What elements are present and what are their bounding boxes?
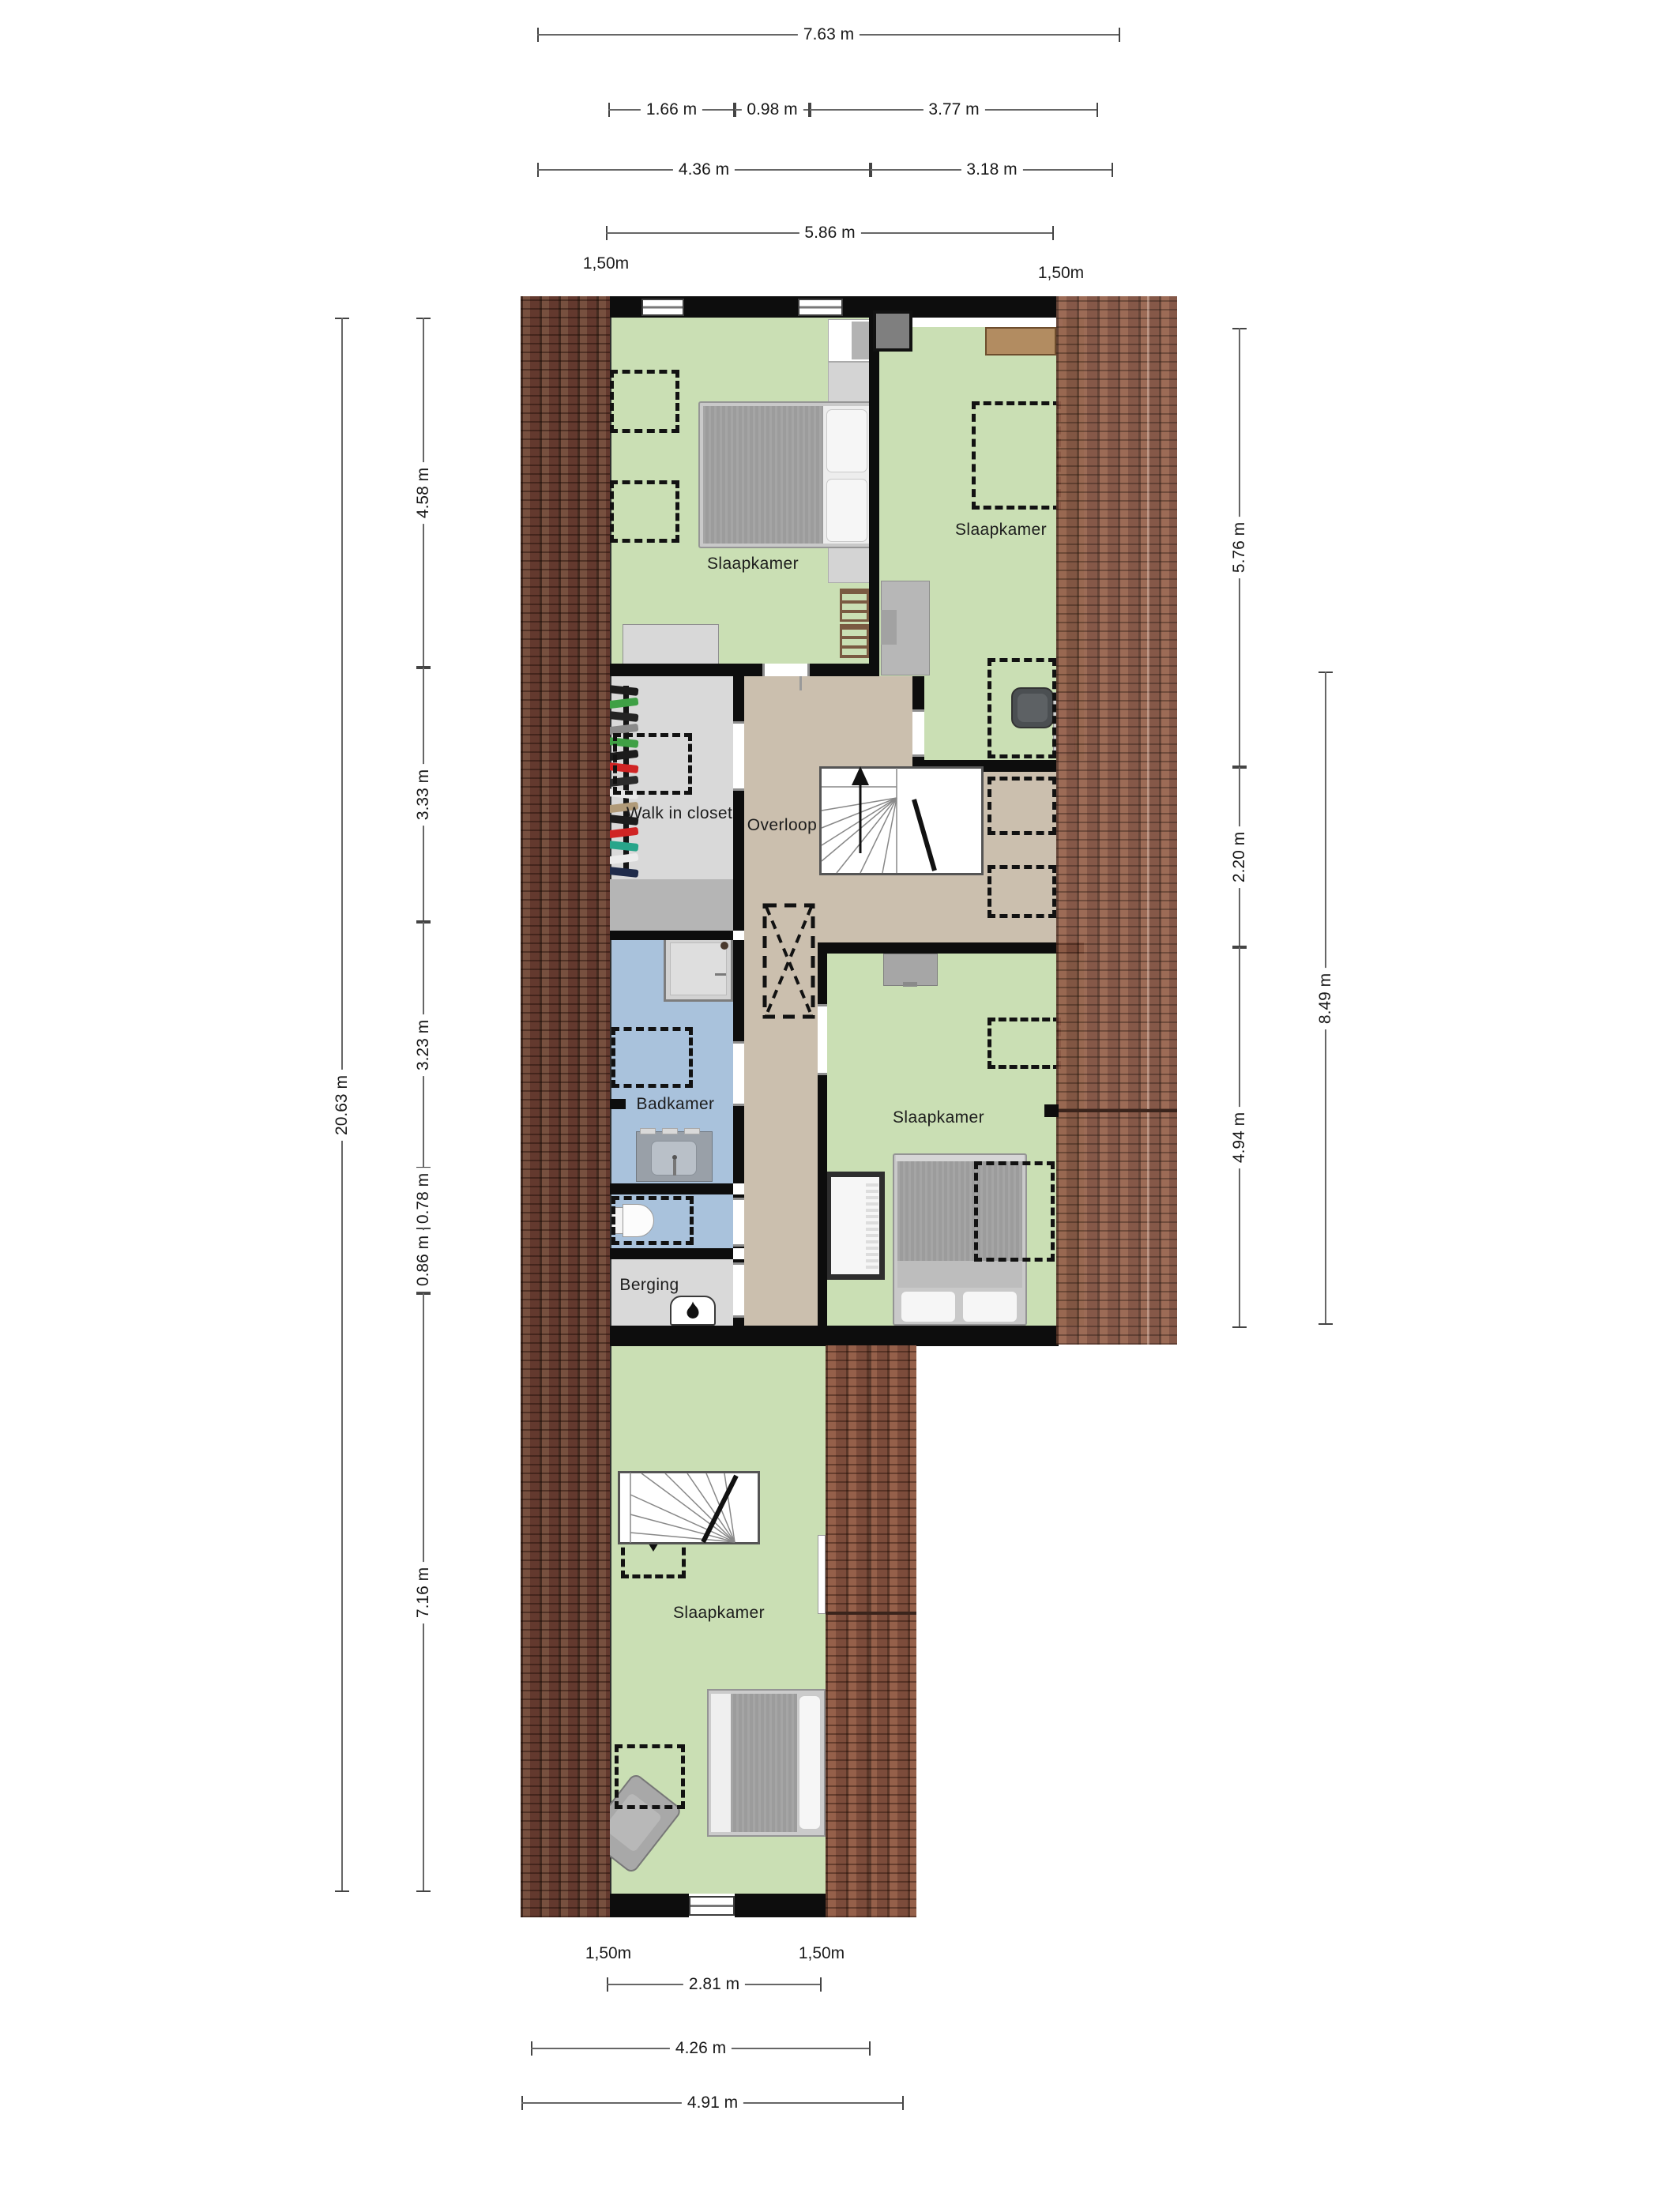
dim-left-seg: 7.16 m bbox=[413, 1293, 434, 1892]
roof-eave-line bbox=[826, 1612, 916, 1615]
wall bbox=[608, 1894, 689, 1917]
dim-top-seg: 3.77 m bbox=[810, 100, 1098, 120]
wall bbox=[610, 1183, 733, 1194]
wall bbox=[818, 942, 1084, 954]
dim-top-seg: 4.36 m bbox=[537, 160, 871, 180]
knee-wall-height-label: 1,50m bbox=[782, 1944, 861, 1963]
wall bbox=[607, 1326, 1059, 1346]
pillow bbox=[962, 1291, 1018, 1322]
ladder-chair bbox=[840, 589, 869, 622]
room-landing-upper bbox=[744, 676, 912, 772]
roof-window-marker bbox=[987, 865, 1056, 918]
window bbox=[641, 299, 684, 316]
bed-e-band bbox=[897, 1261, 1022, 1288]
clothes-item bbox=[608, 685, 639, 696]
roof-right-upper bbox=[1056, 296, 1177, 1345]
clothes-item bbox=[608, 711, 639, 722]
dim-right-seg: 5.76 m bbox=[1229, 328, 1250, 767]
stairs-up bbox=[819, 766, 984, 875]
shower-head-icon bbox=[720, 942, 728, 950]
room-label-bathroom: Badkamer bbox=[637, 1095, 715, 1114]
dim-bottom-seg: 2.81 m bbox=[607, 1974, 822, 1995]
knee-wall-shelf bbox=[912, 318, 1063, 327]
dim-top-seg: 0.98 m bbox=[735, 100, 810, 120]
roof-stub bbox=[1044, 1104, 1059, 1117]
flame-icon bbox=[685, 1301, 701, 1320]
room-label-bedroom-e: Slaapkamer bbox=[893, 1108, 984, 1127]
wall bbox=[818, 942, 827, 1326]
vanity-towel bbox=[684, 1128, 700, 1134]
chimney bbox=[873, 310, 912, 352]
roof-window-marker bbox=[987, 777, 1056, 835]
dim-left-seg: 4.58 m bbox=[413, 318, 434, 668]
bed-e-headbar bbox=[896, 1155, 1024, 1161]
wall bbox=[869, 296, 879, 676]
clothes-item bbox=[608, 853, 639, 865]
wall bbox=[810, 664, 879, 676]
ladder-chair bbox=[840, 624, 869, 658]
clothes-item bbox=[608, 827, 639, 839]
shower-inner bbox=[670, 942, 727, 995]
knee-wall-height-label: 1,50m bbox=[566, 254, 645, 273]
roof-left bbox=[521, 296, 610, 1917]
pillow bbox=[826, 409, 867, 472]
door bbox=[733, 1041, 744, 1106]
vanity-towel bbox=[640, 1128, 656, 1134]
roof-window-marker bbox=[611, 1027, 693, 1088]
closet-low-roof-zone bbox=[610, 879, 733, 931]
wall bbox=[610, 664, 762, 676]
door bbox=[733, 1198, 744, 1247]
pillow bbox=[901, 1291, 956, 1322]
desk-chair-slot bbox=[881, 610, 897, 645]
clothes-item bbox=[608, 867, 639, 878]
dim-bottom-seg: 4.26 m bbox=[531, 2038, 871, 2059]
door bbox=[818, 1004, 827, 1075]
door-leaf bbox=[799, 676, 802, 690]
window bbox=[689, 1896, 735, 1916]
knee-wall-height-label: 1,50m bbox=[1021, 264, 1100, 283]
roof-window-marker bbox=[974, 1161, 1055, 1262]
roof-window-marker bbox=[615, 1744, 685, 1809]
door bbox=[912, 709, 924, 757]
dim-bottom-total: 4.91 m bbox=[521, 2093, 904, 2113]
wall bbox=[610, 1248, 733, 1259]
dresser bbox=[623, 624, 719, 668]
wall bbox=[735, 1894, 826, 1917]
room-label-storage: Berging bbox=[619, 1276, 679, 1295]
knee-wall-height-label: 1,50m bbox=[569, 1944, 648, 1963]
wall bbox=[610, 931, 733, 940]
dim-top-seg: 1.66 m bbox=[608, 100, 735, 120]
dim-top-seg: 5.86 m bbox=[606, 223, 1054, 243]
roof-window-marker bbox=[987, 1018, 1061, 1069]
dim-top-total: 7.63 m bbox=[537, 24, 1120, 45]
shower-faucet-icon bbox=[715, 973, 726, 976]
dim-right-seg: 4.94 m bbox=[1229, 947, 1250, 1328]
bed-s-sheet bbox=[711, 1694, 732, 1832]
pillow bbox=[826, 479, 867, 542]
roof-window-marker bbox=[610, 480, 679, 543]
closet-block bbox=[883, 954, 938, 986]
vanity-towel bbox=[662, 1128, 678, 1134]
roof-window-marker bbox=[987, 658, 1056, 758]
room-label-walk-in-closet: Walk in closet bbox=[626, 804, 732, 823]
stairs-down bbox=[618, 1471, 760, 1544]
faucet-stem bbox=[673, 1160, 676, 1176]
roof-ridge-line bbox=[869, 1345, 871, 1917]
dim-left-total: 20.63 m bbox=[332, 318, 352, 1892]
dim-left-seg: 3.23 m bbox=[413, 922, 434, 1168]
window bbox=[798, 299, 843, 316]
door bbox=[733, 721, 744, 791]
pillow bbox=[799, 1695, 821, 1830]
clothes-item bbox=[608, 841, 639, 852]
door bbox=[762, 664, 810, 676]
roof-window-marker bbox=[613, 733, 692, 795]
dim-left-seg: 0.86 m bbox=[413, 1228, 434, 1293]
dim-right-total: 8.49 m bbox=[1315, 671, 1336, 1325]
dim-top-seg: 3.18 m bbox=[871, 160, 1113, 180]
knee-wall-door bbox=[818, 1535, 826, 1614]
roof-window-marker bbox=[611, 1196, 694, 1245]
double-bed-duvet bbox=[703, 406, 823, 544]
room-label-landing: Overloop bbox=[747, 816, 817, 835]
door bbox=[733, 1262, 744, 1318]
boiler-unit bbox=[670, 1296, 716, 1326]
room-label-bedroom-nw: Slaapkamer bbox=[707, 555, 799, 574]
wood-shelf bbox=[985, 327, 1056, 355]
roof-window-marker bbox=[972, 401, 1061, 510]
roof-ridge-line bbox=[1147, 296, 1149, 1345]
room-label-bedroom-ne: Slaapkamer bbox=[955, 521, 1047, 540]
dim-left-seg: 0.78 m bbox=[413, 1168, 434, 1228]
dim-right-seg: 2.20 m bbox=[1229, 767, 1250, 947]
roof-window-marker bbox=[610, 370, 679, 433]
crib-blanket bbox=[866, 1182, 878, 1269]
clothes-item bbox=[608, 698, 639, 709]
closet-block-handle bbox=[903, 982, 917, 987]
dim-left-seg: 3.33 m bbox=[413, 668, 434, 922]
roof-eave-line bbox=[1056, 1109, 1177, 1112]
floor-opening-marker bbox=[762, 903, 815, 1019]
wall bbox=[733, 676, 744, 931]
room-label-bedroom-s: Slaapkamer bbox=[673, 1604, 765, 1623]
bed-s-duvet bbox=[731, 1694, 797, 1832]
